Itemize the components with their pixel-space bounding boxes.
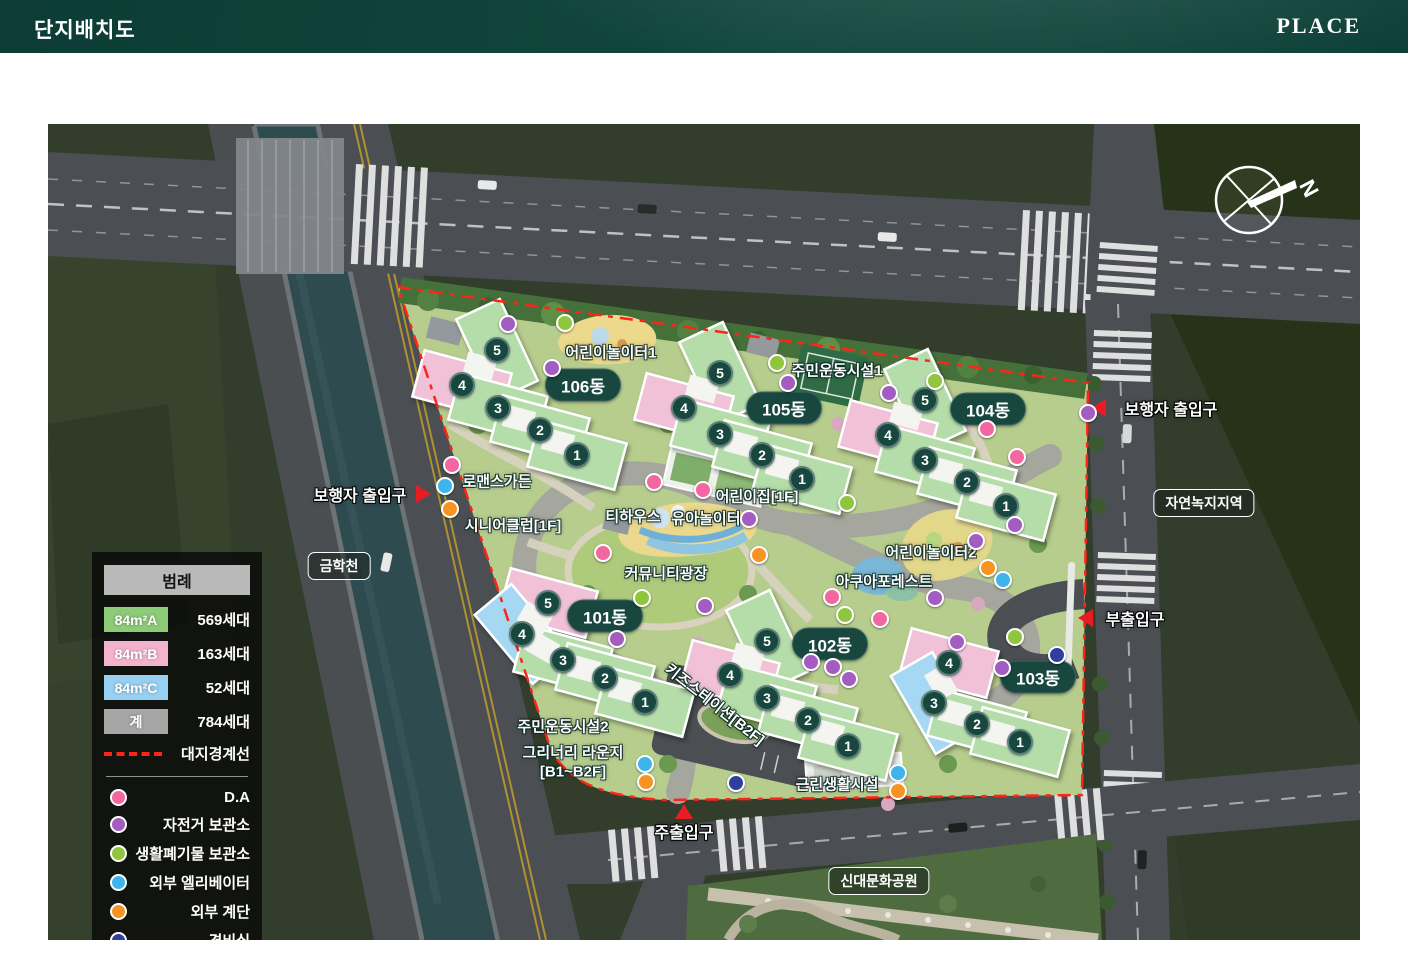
sub-entrance-arrow <box>1078 609 1093 627</box>
elevator-marker <box>636 755 654 773</box>
site-plan-map: N 106동 105동 104동 101동 102동 103동 5 4 3 2 … <box>48 124 1360 940</box>
legend-label-da: D.A <box>127 789 250 806</box>
da-dot-icon <box>110 789 127 806</box>
da-marker <box>823 588 841 606</box>
label-tea-house: 티하우스 <box>605 506 660 527</box>
legend-title: 범례 <box>104 565 250 595</box>
waste-storage-marker <box>836 606 854 624</box>
header-bar: 단지배치도 PLACE <box>0 0 1408 53</box>
bike-storage-marker <box>499 315 517 333</box>
label-community-plaza: 커뮤니티광장 <box>625 563 708 584</box>
waste-storage-marker <box>768 354 786 372</box>
label-sports1: 주민운동시설1 <box>791 360 882 381</box>
page-title: 단지배치도 <box>34 14 136 44</box>
elevator-marker <box>889 764 907 782</box>
waste-storage-marker <box>926 372 944 390</box>
da-marker <box>871 610 889 628</box>
bike-storage-marker <box>740 510 758 528</box>
compass-north-label: N <box>1294 175 1324 201</box>
bike-storage-marker <box>880 384 898 402</box>
unit-circle-106-5: 5 <box>484 337 510 363</box>
label-senior-club: 시니어클럽[1F] <box>465 515 562 536</box>
elevator-marker <box>994 571 1012 589</box>
label-retail: 근린생활시설 <box>796 774 879 795</box>
legend-swatch-84b: 84m²B <box>104 641 168 666</box>
legend-row-elevator: 외부 엘리베이터 <box>104 872 250 893</box>
pedestrian-entrance-west-arrow <box>416 485 431 503</box>
label-greenery-lounge-floors: [B1~B2F] <box>540 764 606 781</box>
bike-storage-marker <box>1079 404 1097 422</box>
bike-storage-marker <box>802 653 820 671</box>
legend-row-stair: 외부 계단 <box>104 901 250 922</box>
legend-label-security: 경비실 <box>127 930 250 940</box>
sub-entrance-label: 부출입구 <box>1106 606 1165 630</box>
legend-count-84c: 52세대 <box>206 677 250 698</box>
brand-logo: PLACE <box>1276 13 1361 39</box>
label-daycare: 어린이집[1F] <box>716 486 799 507</box>
unit-circle-102-4: 4 <box>717 662 743 688</box>
unit-circle-103-2: 2 <box>964 711 990 737</box>
legend: 범례 84m²A 569세대 84m²B 163세대 84m²C 52세대 계 … <box>92 552 262 940</box>
da-marker <box>694 481 712 499</box>
compass: N <box>1201 150 1331 246</box>
unit-circle-105-4: 4 <box>671 395 697 421</box>
legend-swatch-84a: 84m²A <box>104 607 168 632</box>
unit-circle-106-2: 2 <box>527 417 553 443</box>
bike-storage-marker <box>543 359 561 377</box>
waste-storage-marker <box>633 589 651 607</box>
waste-storage-marker <box>1006 628 1024 646</box>
unit-circle-101-4: 4 <box>509 621 535 647</box>
legend-count-84b: 163세대 <box>197 643 250 664</box>
unit-circle-105-3: 3 <box>707 421 733 447</box>
label-aqua-forest: 아쿠아포레스트 <box>836 571 933 592</box>
bike-storage-marker <box>696 597 714 615</box>
legend-divider <box>106 776 248 777</box>
unit-circle-102-2: 2 <box>795 707 821 733</box>
legend-row-84a: 84m²A 569세대 <box>104 607 250 632</box>
da-marker <box>594 544 612 562</box>
legend-row-security: 경비실 <box>104 930 250 940</box>
stair-marker <box>889 782 907 800</box>
building-label-103: 103동 <box>1000 661 1076 694</box>
label-natural-green-zone: 자연녹지지역 <box>1153 489 1254 517</box>
unit-circle-105-2: 2 <box>749 442 775 468</box>
legend-row-da: D.A <box>104 789 250 806</box>
legend-boundary-dash <box>104 752 162 756</box>
stair-marker <box>637 773 655 791</box>
unit-circle-104-4: 4 <box>875 422 901 448</box>
legend-boundary-label: 대지경계선 <box>181 743 250 764</box>
legend-label-waste: 생활폐기물 보관소 <box>127 843 250 864</box>
label-sindae-culture-park: 신대문화공원 <box>828 867 929 895</box>
stair-marker <box>441 500 459 518</box>
unit-circle-101-1: 1 <box>632 689 658 715</box>
legend-row-waste: 생활폐기물 보관소 <box>104 843 250 864</box>
stair-dot-icon <box>110 903 127 920</box>
legend-label-bike: 자전거 보관소 <box>127 814 250 835</box>
unit-circle-104-2: 2 <box>954 469 980 495</box>
unit-circle-103-3: 3 <box>921 690 947 716</box>
label-romance-garden: 로맨스가든 <box>462 471 531 492</box>
legend-count-84a: 569세대 <box>197 609 250 630</box>
legend-swatch-total: 계 <box>104 709 168 734</box>
legend-count-total: 784세대 <box>197 711 250 732</box>
legend-label-stair: 외부 계단 <box>127 901 250 922</box>
bike-storage-marker <box>779 374 797 392</box>
legend-row-84b: 84m²B 163세대 <box>104 641 250 666</box>
unit-circle-101-3: 3 <box>550 647 576 673</box>
unit-circle-101-2: 2 <box>592 665 618 691</box>
pedestrian-entrance-east-label: 보행자 출입구 <box>1125 396 1218 420</box>
legend-label-elevator: 외부 엘리베이터 <box>127 872 250 893</box>
unit-circle-106-3: 3 <box>485 395 511 421</box>
legend-row-84c: 84m²C 52세대 <box>104 675 250 700</box>
legend-row-total: 계 784세대 <box>104 709 250 734</box>
unit-circle-102-3: 3 <box>754 685 780 711</box>
unit-circle-105-5: 5 <box>707 360 733 386</box>
unit-circle-103-1: 1 <box>1007 729 1033 755</box>
bike-storage-marker <box>967 532 985 550</box>
pedestrian-entrance-west-label: 보행자 출입구 <box>314 482 407 506</box>
unit-circle-103-4: 4 <box>936 650 962 676</box>
unit-circle-101-5: 5 <box>535 590 561 616</box>
da-marker <box>978 420 996 438</box>
bike-storage-marker <box>948 633 966 651</box>
legend-swatch-84c: 84m²C <box>104 675 168 700</box>
unit-circle-102-5: 5 <box>754 628 780 654</box>
security-dot-icon <box>110 932 127 940</box>
da-marker <box>443 456 461 474</box>
waste-storage-marker <box>838 494 856 512</box>
bike-storage-marker <box>824 658 842 676</box>
legend-row-boundary: 대지경계선 <box>104 743 250 764</box>
building-label-105: 105동 <box>746 392 822 425</box>
security-office-marker <box>727 774 745 792</box>
waste-dot-icon <box>110 845 127 862</box>
label-geumhak-stream: 금학천 <box>308 552 371 580</box>
unit-circle-102-1: 1 <box>835 733 861 759</box>
label-toddler-playground: 유아놀이터 <box>671 508 740 529</box>
bike-storage-marker <box>840 670 858 688</box>
label-greenery-lounge: 그리너리 라운지 <box>523 742 624 763</box>
bike-storage-marker <box>608 630 626 648</box>
unit-circle-104-5: 5 <box>912 387 938 413</box>
waste-storage-marker <box>556 314 574 332</box>
bike-storage-marker <box>926 589 944 607</box>
unit-circle-104-3: 3 <box>912 447 938 473</box>
da-marker <box>1008 448 1026 466</box>
unit-circle-106-1: 1 <box>564 442 590 468</box>
bike-storage-marker <box>1006 516 1024 534</box>
da-marker <box>645 473 663 491</box>
stair-marker <box>750 546 768 564</box>
label-playground2: 어린이놀이터2 <box>885 542 976 563</box>
building-label-101: 101동 <box>567 600 643 633</box>
main-entrance-label: 주출입구 <box>655 819 714 843</box>
label-playground1: 어린이놀이터1 <box>565 342 656 363</box>
bike-dot-icon <box>110 816 127 833</box>
bike-storage-marker <box>993 659 1011 677</box>
legend-row-bike: 자전거 보관소 <box>104 814 250 835</box>
unit-circle-106-4: 4 <box>449 372 475 398</box>
label-sports2: 주민운동시설2 <box>517 716 608 737</box>
elevator-dot-icon <box>110 874 127 891</box>
security-office-marker <box>1048 646 1066 664</box>
elevator-marker <box>436 477 454 495</box>
main-entrance-arrow <box>675 804 693 819</box>
stair-marker <box>979 559 997 577</box>
